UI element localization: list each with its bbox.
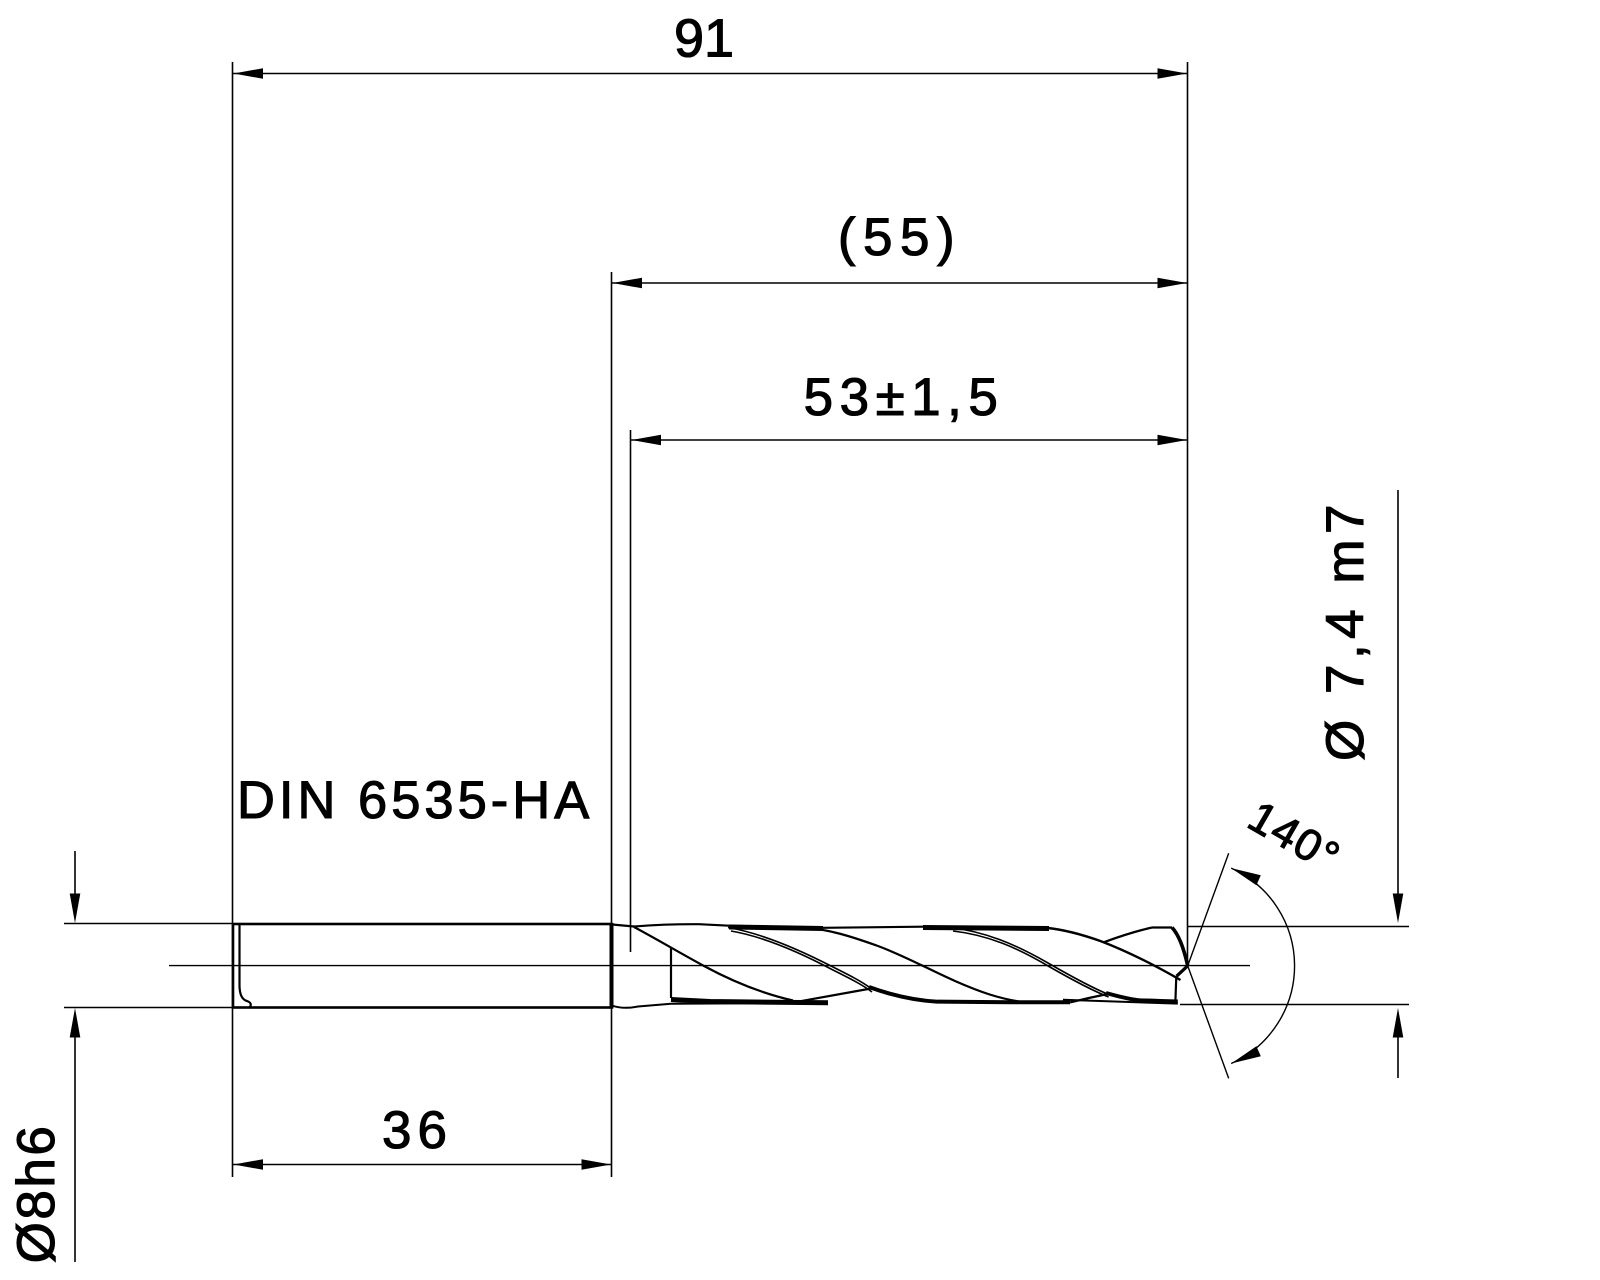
svg-text:Ø 7,4 m7: Ø 7,4 m7 bbox=[1316, 499, 1375, 761]
svg-text:(55): (55) bbox=[838, 208, 962, 267]
svg-text:DIN 6535-HA: DIN 6535-HA bbox=[237, 771, 593, 830]
svg-text:Ø8h6: Ø8h6 bbox=[7, 1124, 66, 1264]
svg-text:91: 91 bbox=[674, 9, 734, 69]
svg-text:53±1,5: 53±1,5 bbox=[804, 368, 1005, 427]
svg-text:36: 36 bbox=[382, 1101, 453, 1160]
